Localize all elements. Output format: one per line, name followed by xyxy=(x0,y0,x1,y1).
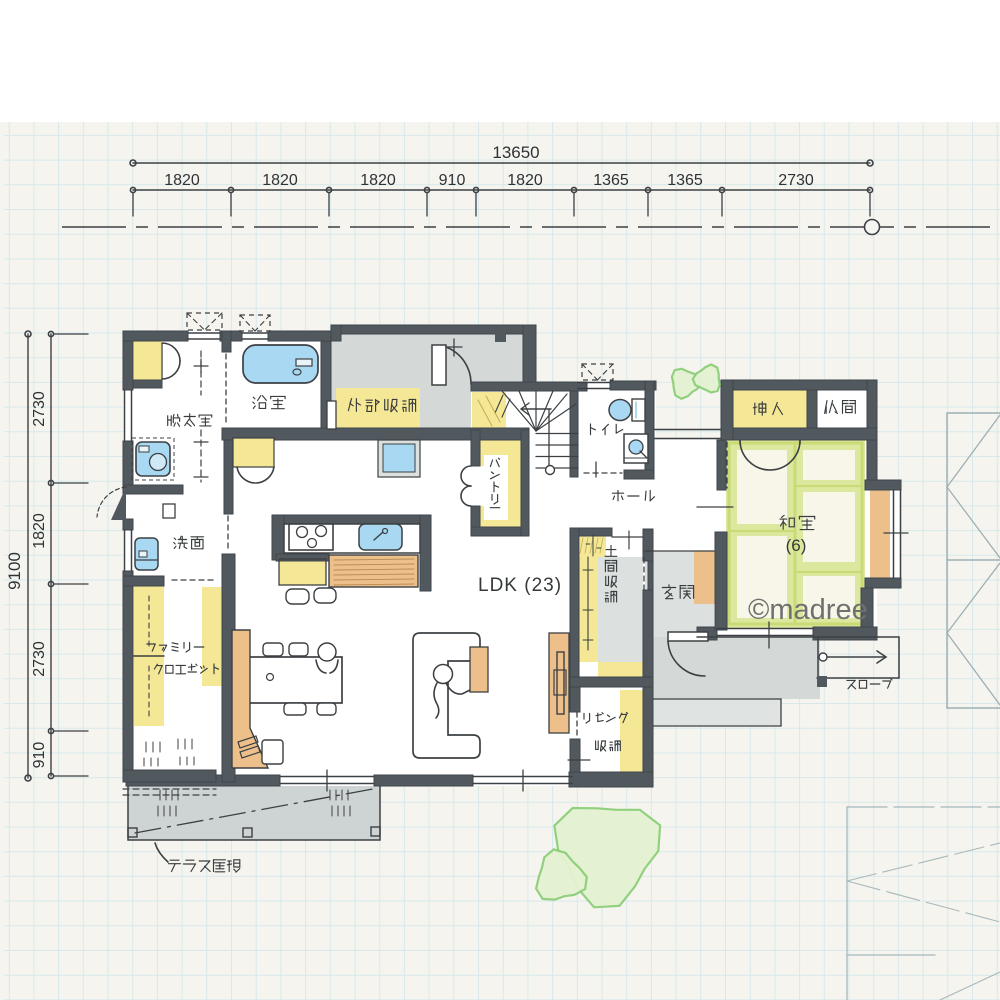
svg-text:1820: 1820 xyxy=(164,172,200,189)
svg-text:1365: 1365 xyxy=(593,172,629,189)
svg-text:9100: 9100 xyxy=(5,552,24,590)
svg-text:©madree: ©madree xyxy=(748,594,868,626)
svg-text:13650: 13650 xyxy=(492,143,539,162)
svg-text:1820: 1820 xyxy=(31,513,48,549)
svg-text:910: 910 xyxy=(31,742,48,769)
svg-text:(6): (6) xyxy=(786,536,807,555)
svg-text:910: 910 xyxy=(439,172,466,189)
svg-text:2730: 2730 xyxy=(31,391,48,427)
svg-text:1820: 1820 xyxy=(360,172,396,189)
svg-text:1365: 1365 xyxy=(667,172,703,189)
svg-text:1820: 1820 xyxy=(262,172,298,189)
svg-text:LDK (23): LDK (23) xyxy=(478,575,562,596)
svg-text:1820: 1820 xyxy=(507,172,543,189)
svg-text:2730: 2730 xyxy=(778,172,814,189)
svg-text:2730: 2730 xyxy=(31,641,48,677)
